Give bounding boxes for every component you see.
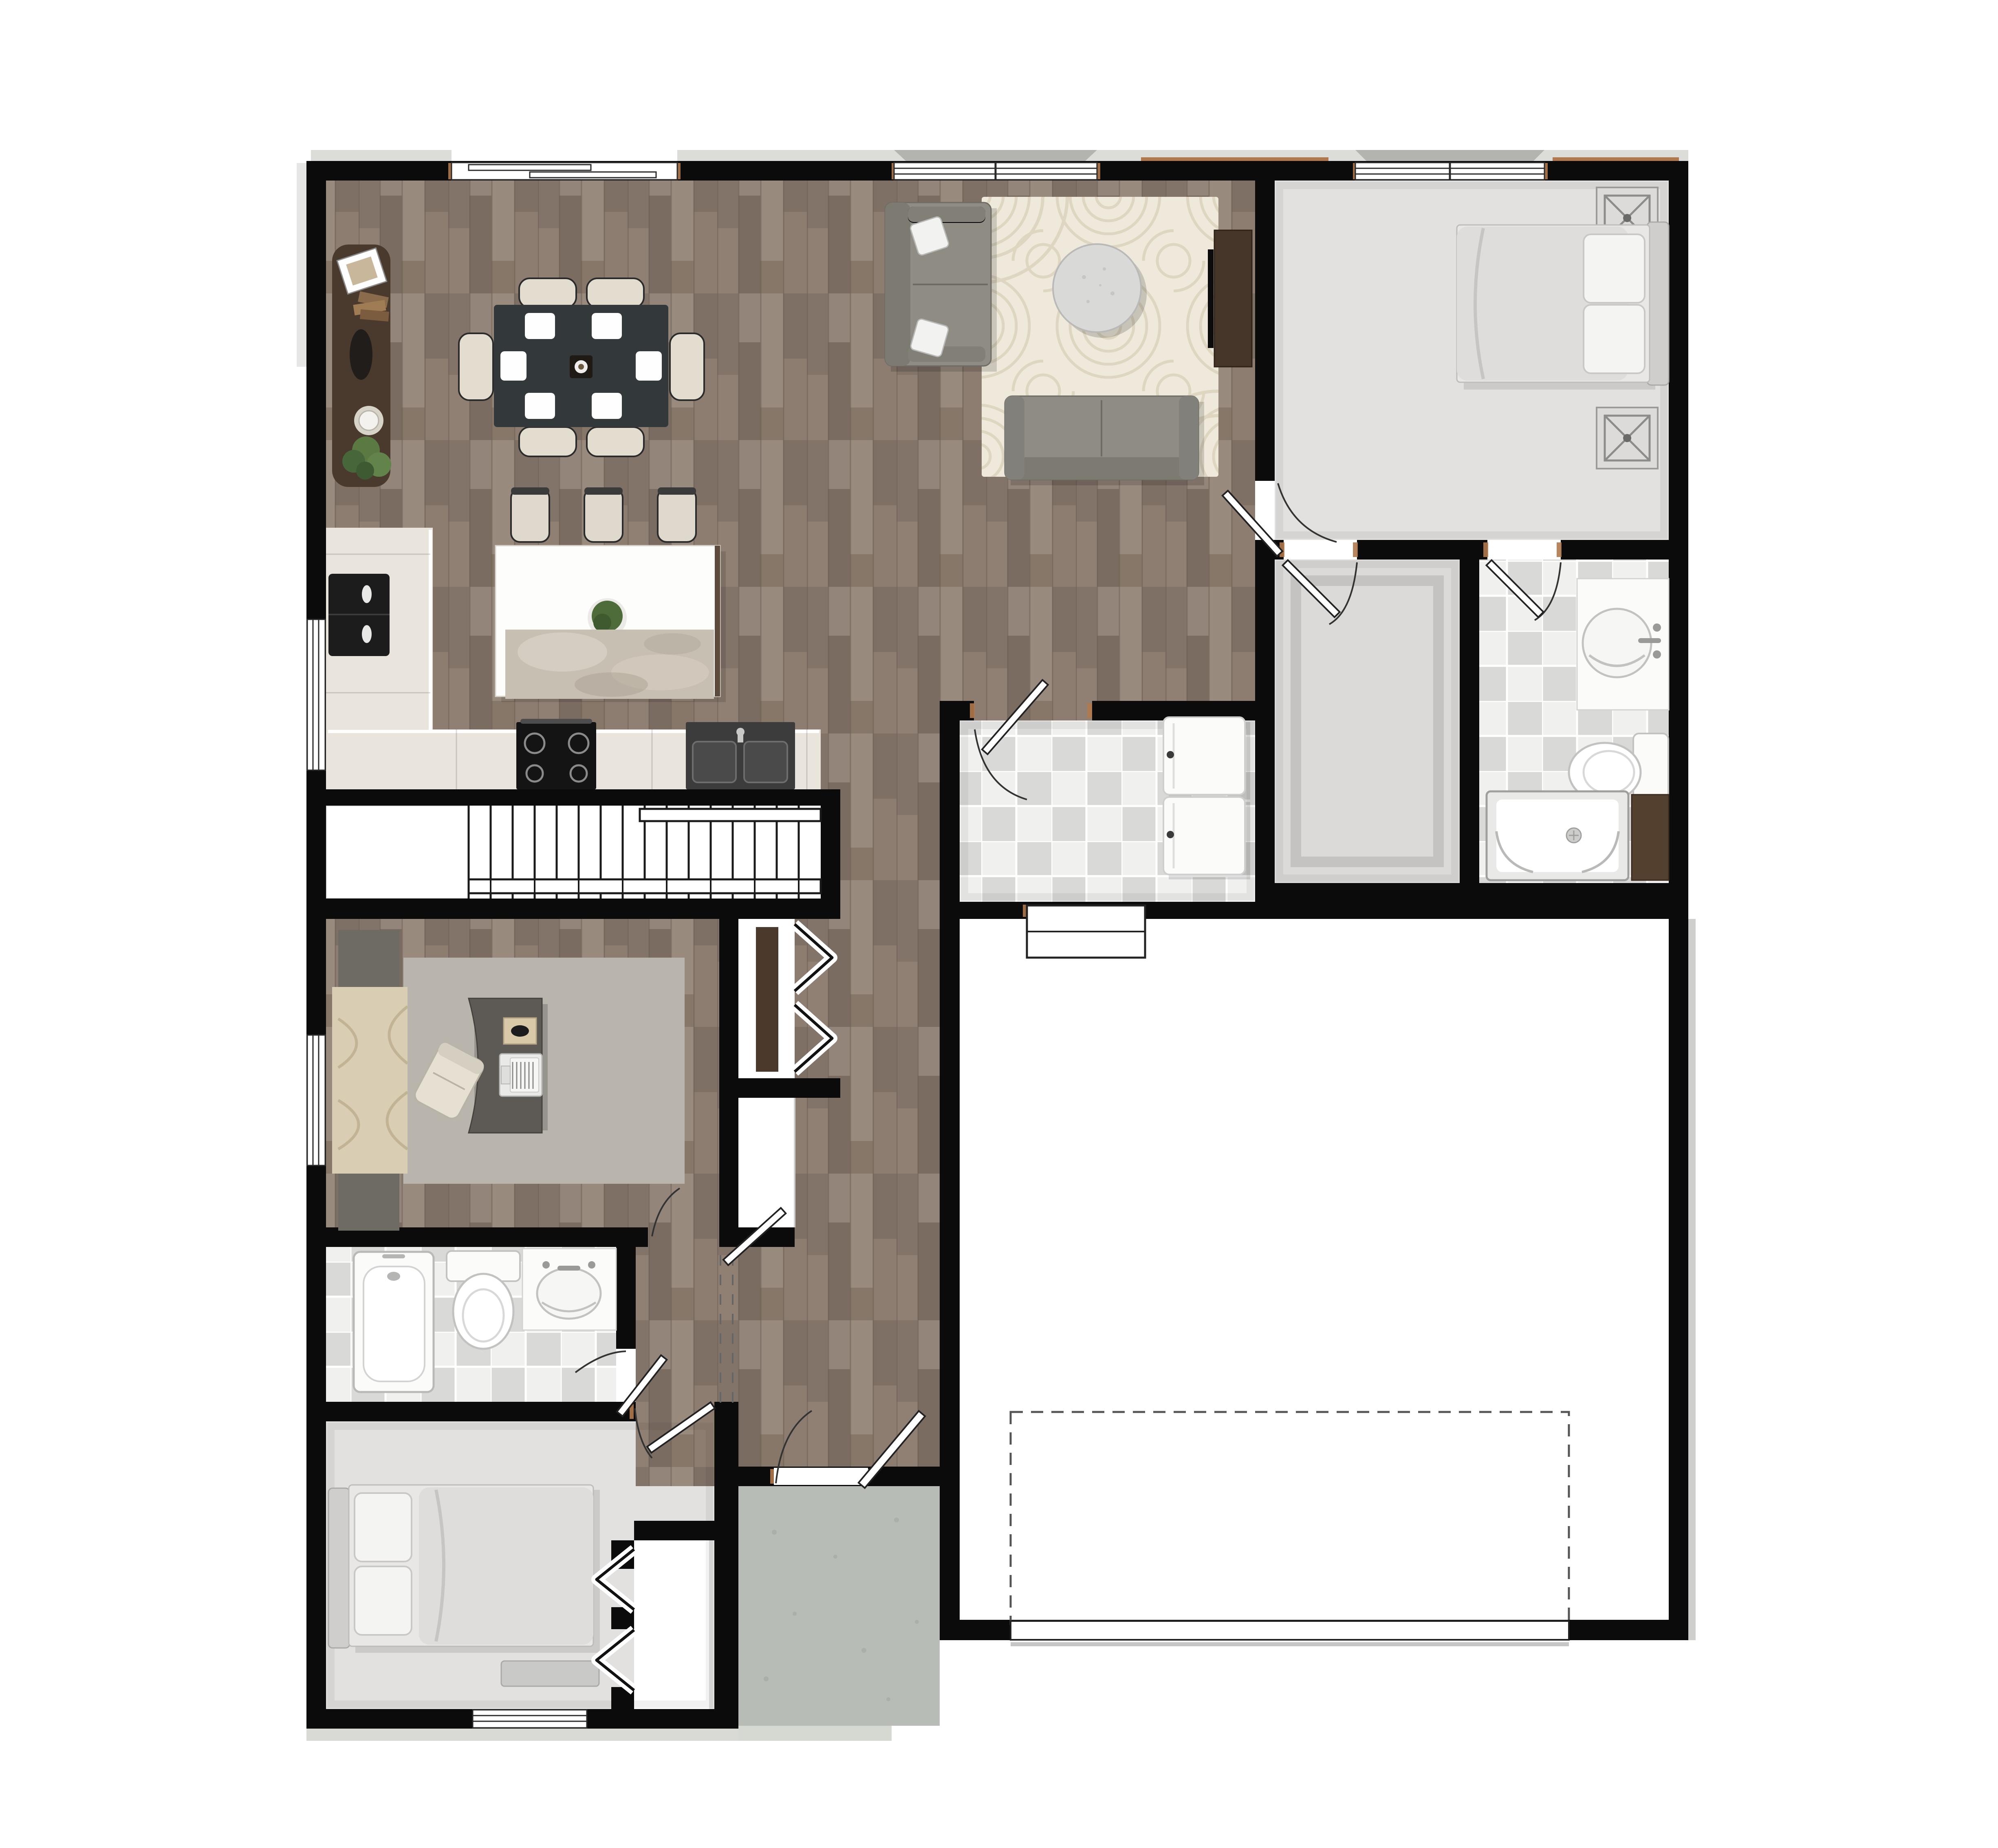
left-eave-strip (297, 163, 306, 367)
refrigerator (328, 574, 390, 656)
fascia-tan-line (1141, 157, 1328, 161)
entry-porch (738, 1486, 940, 1741)
garage-door-shadow-line (1011, 1642, 1569, 1646)
washer (1163, 717, 1250, 800)
wall-suite-h-seg2 (1357, 540, 1487, 559)
floor-plan-canvas (0, 0, 1998, 1848)
master-bed (1457, 222, 1669, 390)
dining-window (452, 163, 677, 180)
porch-concrete (738, 1486, 940, 1726)
wall-garage-left (940, 902, 960, 1640)
staircase (469, 806, 821, 899)
wall-hall-closet-bottom (719, 1078, 840, 1098)
stair-handrail-top (640, 809, 821, 821)
right-trim-strip (1688, 919, 1696, 1640)
tub-faucet-icon (382, 1254, 405, 1258)
bed-pillow (1584, 305, 1645, 373)
nightstand (1597, 407, 1658, 469)
wall-bath2-bottom (306, 1402, 632, 1421)
fascia-tan-line (1553, 157, 1679, 161)
kitchen-window (307, 619, 325, 770)
porch-apron (738, 1726, 892, 1741)
wall-laundry-right (1255, 559, 1275, 902)
vanity-2 (522, 1249, 616, 1330)
hall-closet-shelf (756, 927, 778, 1072)
front-door-threshold (774, 1468, 868, 1485)
stair-handrail-bottom (469, 879, 821, 893)
wall-closet2-top (634, 1521, 714, 1540)
master-window (1355, 163, 1544, 180)
headboard-2 (328, 1488, 350, 1648)
bed2-pillow (355, 1566, 412, 1635)
island-stool (511, 489, 696, 542)
pantry-interior (738, 1098, 795, 1227)
sofa (885, 203, 997, 372)
wall-bedroom2-right (714, 1402, 738, 1729)
media-console (1208, 230, 1252, 367)
headboard (1647, 222, 1669, 385)
shower (1487, 791, 1628, 880)
bed2-pillow (355, 1493, 412, 1562)
loveseat (1005, 396, 1204, 485)
wall-bath2-right (616, 1247, 636, 1349)
bed-pillow (1584, 234, 1645, 303)
wall-laundry-left (940, 701, 960, 902)
laptop (500, 1054, 542, 1096)
bedroom2-window (473, 1710, 587, 1728)
bedroom2-closet-interior (634, 1540, 709, 1709)
bed-2 (328, 1485, 600, 1653)
bottom-eave-band (306, 1729, 738, 1741)
wall-closet-bath (1460, 559, 1479, 902)
bathtub (354, 1252, 434, 1392)
garage-overhead-door (1011, 1621, 1569, 1640)
kitchen-runner-rug (505, 630, 714, 699)
sink-faucet-icon (557, 1266, 580, 1271)
wall-suite-bottom (1255, 883, 1669, 902)
console-vase (350, 329, 372, 380)
window-bench (501, 1661, 599, 1686)
wall-exterior-left (306, 161, 326, 1729)
garage-man-door (1027, 905, 1145, 958)
living-window-roof (894, 150, 1097, 161)
dryer (1163, 797, 1250, 879)
closet-carpet (1275, 559, 1460, 883)
sink-faucet-icon (1638, 638, 1661, 643)
linen-closet (1632, 795, 1669, 880)
wall-suite-h-seg3 (1561, 540, 1669, 559)
master-window-roof (1355, 150, 1544, 161)
desk-tray (504, 1018, 536, 1044)
kitchen-sink (686, 722, 795, 789)
tv (1208, 249, 1214, 348)
wall-kitchen-stairs (306, 789, 840, 806)
office-window (307, 1035, 325, 1165)
office-window-drapes (332, 930, 408, 1231)
table-centerpiece (570, 355, 593, 378)
living-window (894, 163, 1097, 180)
wall-stairs-bottom (306, 899, 840, 919)
wall-living-master (1255, 181, 1275, 481)
garage-slab (960, 919, 1669, 1620)
console-candle (354, 406, 383, 435)
range (516, 719, 596, 789)
wall-exterior-right (1669, 161, 1688, 1640)
under-stair-void (326, 806, 469, 899)
stool-backs (511, 487, 696, 495)
tub-drain (387, 1272, 400, 1281)
